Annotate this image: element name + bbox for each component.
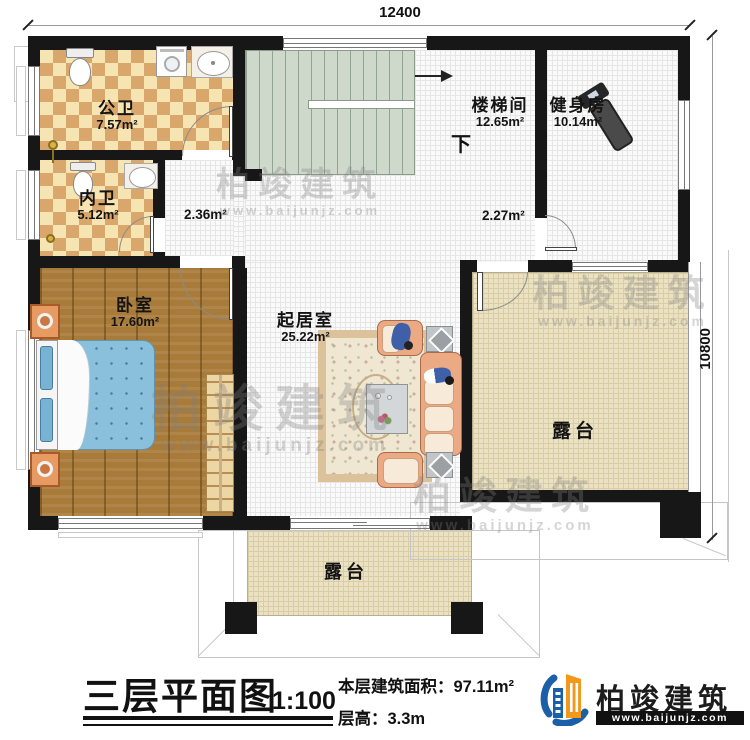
sink-icon	[124, 163, 158, 189]
floor-drain-icon	[46, 234, 55, 243]
person-head	[404, 341, 413, 350]
brand-logo-icon	[540, 668, 590, 726]
terrace-parapet	[688, 262, 701, 492]
brand-website: www.baijunjz.com	[596, 711, 744, 725]
hall-area-label: 2.27m²	[482, 208, 525, 223]
wardrobe-rail	[219, 375, 222, 511]
wall-bottom-c	[430, 516, 472, 530]
floor-drain-stem	[52, 150, 54, 163]
dimension-line-top	[28, 25, 690, 26]
plan-scale: 1:100	[272, 687, 336, 716]
room-name: 健身房	[533, 96, 623, 115]
floor-plan-page: 下	[0, 0, 750, 740]
dimension-right-value: 10800	[697, 328, 714, 370]
room-name: 内卫	[53, 189, 143, 208]
door-leaf	[229, 106, 233, 157]
nightstand-icon	[30, 304, 60, 339]
hall-area-label: 2.36m²	[184, 207, 227, 222]
stair-rail	[308, 100, 415, 109]
title-underline-thin	[83, 724, 333, 726]
dimension-line-right	[712, 36, 713, 540]
wall-bath-stairhall	[233, 36, 245, 176]
lamp-shade	[428, 453, 455, 480]
window-sill	[16, 330, 26, 470]
room-label-inner-bath: 内卫 5.12m²	[53, 189, 143, 223]
sink-icon	[191, 46, 233, 78]
window	[283, 38, 427, 48]
door-leaf	[150, 216, 154, 253]
window-sill	[16, 66, 26, 136]
room-area: 17.60m²	[95, 315, 175, 330]
floor-area-line: 本层建筑面积：97.11m²	[338, 673, 514, 697]
room-label-terrace-bottom: 露台	[324, 558, 368, 584]
door-leaf	[477, 272, 483, 311]
door-leaf	[545, 247, 577, 251]
title-underline	[83, 716, 333, 720]
wall-bedroom-top-a	[28, 256, 180, 268]
room-area: 12.65m²	[455, 115, 545, 130]
column	[225, 602, 257, 634]
floor-drain-icon	[48, 140, 58, 150]
window-sill	[16, 170, 26, 240]
eave-line-right	[728, 250, 729, 562]
sink-basin	[129, 167, 156, 188]
sofa-cushion	[383, 458, 419, 484]
stair-direction-line	[415, 75, 442, 77]
wall-innerbath-right-b	[153, 252, 165, 256]
room-label-gym: 健身房 10.14m²	[533, 96, 623, 130]
washer-panel	[160, 49, 184, 52]
room-area: 25.22m²	[258, 330, 353, 345]
staircase	[245, 50, 415, 175]
room-area: 5.12m²	[53, 208, 143, 223]
window	[58, 518, 203, 529]
door-leaf	[229, 268, 233, 320]
side-table-lamp	[426, 452, 453, 478]
wardrobe-icon	[206, 374, 234, 512]
plan-title: 三层平面图	[83, 666, 278, 720]
window-sill	[58, 532, 203, 538]
wall-bottom-b	[203, 516, 290, 530]
room-name: 起居室	[258, 311, 353, 330]
pillow	[40, 398, 53, 442]
wall-bottom-a	[28, 516, 58, 530]
room-label-bedroom: 卧室 17.60m²	[95, 296, 175, 330]
washing-machine-icon	[156, 46, 187, 77]
toilet-icon	[70, 162, 96, 171]
wall-top-right	[427, 36, 690, 50]
room-name: 楼梯间	[455, 96, 545, 115]
room-label-public-bath: 公卫 7.57m²	[72, 99, 162, 133]
sofa-cushion	[424, 406, 454, 432]
floor-height-line: 层高：3.3m	[338, 705, 425, 729]
table-flowers	[375, 413, 393, 427]
coffee-table	[366, 384, 408, 434]
stair-down-label: 下	[451, 128, 471, 157]
room-area: 10.14m²	[533, 115, 623, 130]
floor-corridor-opening	[233, 176, 245, 256]
column	[451, 602, 483, 634]
window	[28, 170, 40, 240]
window	[572, 262, 648, 271]
room-name: 公卫	[72, 99, 162, 118]
room-label-stairwell: 楼梯间 12.65m²	[455, 96, 545, 130]
table-cup	[375, 393, 381, 399]
wall-bedroom-right	[233, 268, 247, 530]
window	[28, 66, 40, 136]
wall-bedroom-top-b	[232, 256, 245, 268]
wall-terrace-top-c	[648, 260, 690, 272]
side-table-lamp	[426, 326, 453, 352]
room-label-terrace-right: 露台	[552, 416, 598, 443]
window	[678, 100, 690, 190]
dimension-top-value: 12400	[360, 4, 440, 21]
room-label-living: 起居室 25.22m²	[258, 311, 353, 345]
toilet-icon	[69, 58, 91, 86]
pillow	[40, 346, 53, 390]
wall-stair-stub	[245, 169, 262, 181]
column	[660, 494, 701, 538]
stair-direction-arrow-icon	[441, 70, 453, 82]
table-cup	[387, 395, 392, 400]
lamp-icon	[37, 313, 53, 329]
room-name: 卧室	[95, 296, 175, 315]
nightstand-icon	[30, 452, 60, 487]
sink-drain	[211, 61, 215, 65]
person-head	[445, 376, 454, 385]
wall-terrace-top-b	[528, 260, 572, 272]
room-area: 7.57m²	[72, 118, 162, 133]
lamp-shade	[428, 327, 455, 354]
sliding-window	[290, 518, 430, 529]
washer-drum	[164, 56, 180, 72]
toilet-icon	[66, 48, 94, 58]
lamp-icon	[37, 461, 53, 477]
sofa-single	[377, 452, 423, 488]
